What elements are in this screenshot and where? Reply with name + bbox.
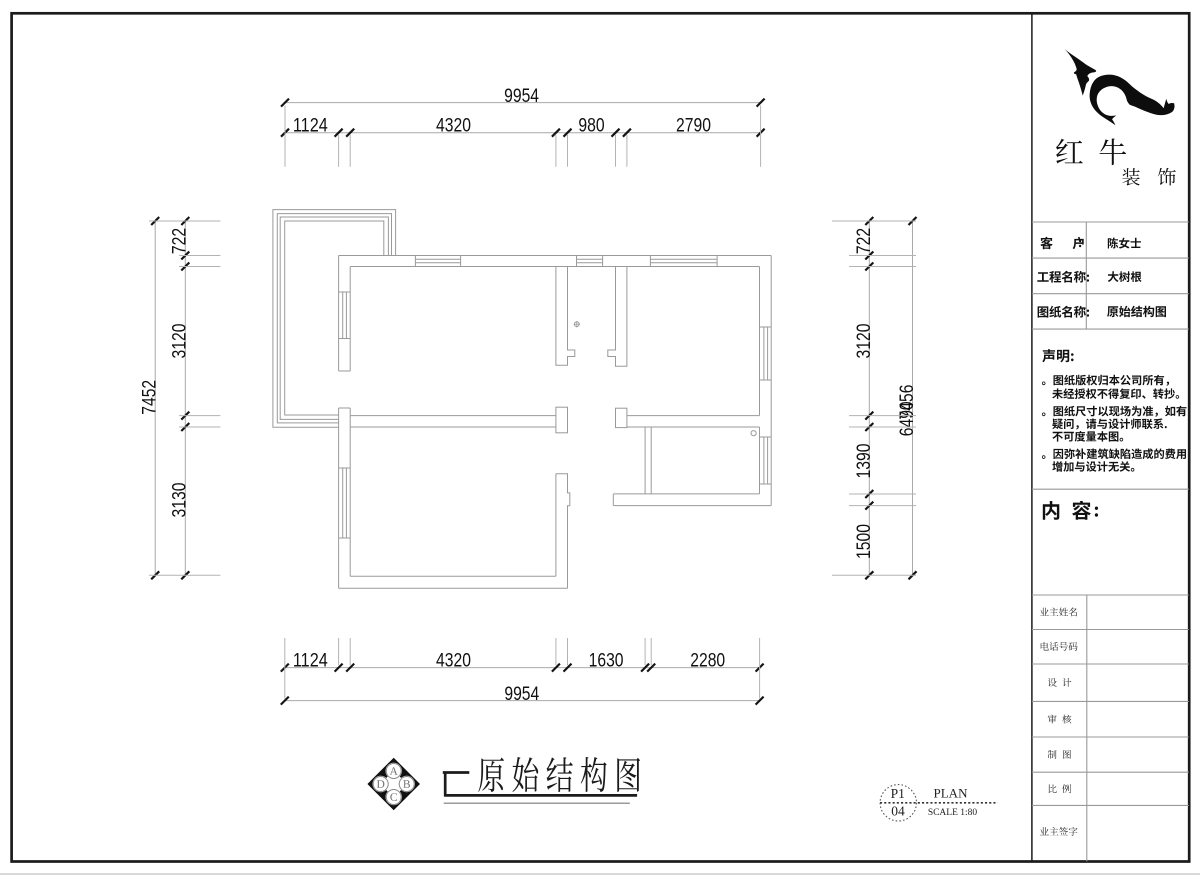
svg-text:9954: 9954 bbox=[504, 683, 539, 705]
svg-text:3120: 3120 bbox=[853, 323, 875, 358]
svg-text:7452: 7452 bbox=[138, 380, 160, 415]
svg-text:PLAN: PLAN bbox=[934, 785, 969, 800]
svg-text:04: 04 bbox=[891, 804, 905, 819]
svg-text:P1: P1 bbox=[891, 786, 905, 801]
svg-text:1390: 1390 bbox=[853, 443, 875, 478]
svg-text:1630: 1630 bbox=[589, 649, 624, 671]
svg-text:2790: 2790 bbox=[676, 115, 711, 137]
svg-text:9954: 9954 bbox=[504, 85, 539, 107]
svg-text:722: 722 bbox=[853, 228, 875, 254]
svg-text:2280: 2280 bbox=[690, 649, 725, 671]
svg-text:1124: 1124 bbox=[293, 649, 328, 671]
svg-text:1124: 1124 bbox=[293, 115, 328, 137]
svg-text:SCALE 1:80: SCALE 1:80 bbox=[928, 808, 978, 818]
svg-text:3130: 3130 bbox=[169, 482, 191, 517]
svg-text:722: 722 bbox=[169, 228, 191, 254]
svg-text:980: 980 bbox=[578, 115, 604, 137]
svg-text:3120: 3120 bbox=[169, 323, 191, 358]
svg-text:6490: 6490 bbox=[896, 401, 918, 436]
svg-text:4320: 4320 bbox=[436, 649, 471, 671]
svg-text:1500: 1500 bbox=[853, 524, 875, 559]
svg-text:4320: 4320 bbox=[436, 115, 471, 137]
